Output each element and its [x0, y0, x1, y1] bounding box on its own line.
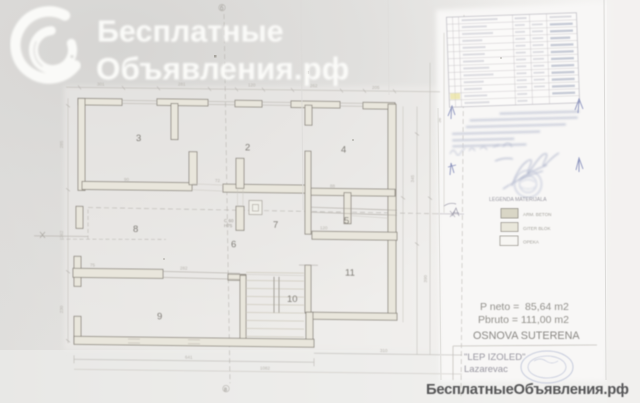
svg-text:БесплатныеОбъявления.рф: БесплатныеОбъявления.рф [426, 382, 629, 398]
svg-text:"LEP IZOLED": "LEP IZOLED" [464, 352, 525, 363]
svg-text:Pbruto = 111,00 m2: Pbruto = 111,00 m2 [478, 314, 569, 326]
svg-text:б: б [220, 6, 224, 12]
svg-text:230: 230 [59, 305, 64, 313]
svg-text:P neto = 85,64 m2: P neto = 85,64 m2 [480, 301, 569, 313]
svg-text:120: 120 [320, 225, 328, 230]
svg-text:11: 11 [345, 268, 355, 279]
svg-text:285: 285 [59, 140, 64, 148]
svg-text:10: 10 [287, 294, 298, 305]
svg-text:LEGENDA MATERIJALA: LEGENDA MATERIJALA [489, 197, 547, 203]
svg-text:641: 641 [185, 355, 193, 360]
svg-text:H75: H75 [224, 223, 233, 228]
svg-text:88: 88 [330, 183, 336, 188]
svg-text:262: 262 [59, 230, 64, 238]
svg-text:Lazarevac: Lazarevac [464, 364, 508, 375]
svg-text:4: 4 [341, 145, 346, 156]
svg-text:205: 205 [372, 85, 380, 90]
svg-text:3: 3 [136, 133, 141, 144]
svg-text:9: 9 [157, 311, 162, 322]
svg-text:2: 2 [245, 142, 250, 153]
svg-text:5: 5 [344, 216, 349, 227]
svg-text:6: 6 [231, 239, 236, 250]
svg-text:Бесплатные: Бесплатные [97, 15, 284, 49]
svg-text:72: 72 [215, 178, 221, 183]
svg-text:1082: 1082 [260, 366, 271, 371]
svg-text:282: 282 [180, 266, 188, 271]
svg-text:OSNOVA SUTERENA: OSNOVA SUTERENA [473, 330, 580, 342]
svg-text:OPEKA: OPEKA [523, 240, 540, 245]
svg-text:7: 7 [273, 220, 278, 231]
svg-text:75: 75 [90, 262, 96, 267]
svg-text:390: 390 [423, 275, 428, 283]
svg-text:Объявления.рф: Объявления.рф [96, 51, 349, 87]
svg-text:ARM. BETON: ARM. BETON [523, 212, 552, 217]
svg-text:GITER BLOK: GITER BLOK [523, 226, 552, 231]
svg-text:8: 8 [133, 224, 138, 235]
svg-text:в: в [224, 387, 227, 393]
svg-text:345: 345 [410, 174, 415, 182]
svg-text:310: 310 [380, 348, 388, 353]
svg-text:90: 90 [124, 177, 130, 182]
